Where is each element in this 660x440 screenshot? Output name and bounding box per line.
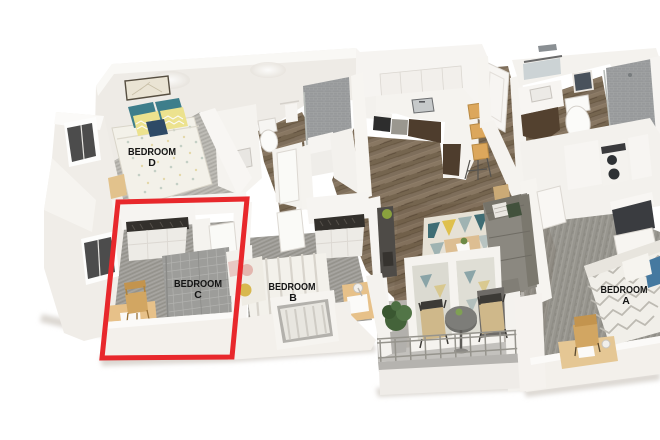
svg-text:B: B (289, 292, 297, 304)
svg-text:C: C (194, 289, 202, 301)
svg-text:A: A (622, 295, 630, 307)
svg-text:D: D (148, 157, 156, 169)
